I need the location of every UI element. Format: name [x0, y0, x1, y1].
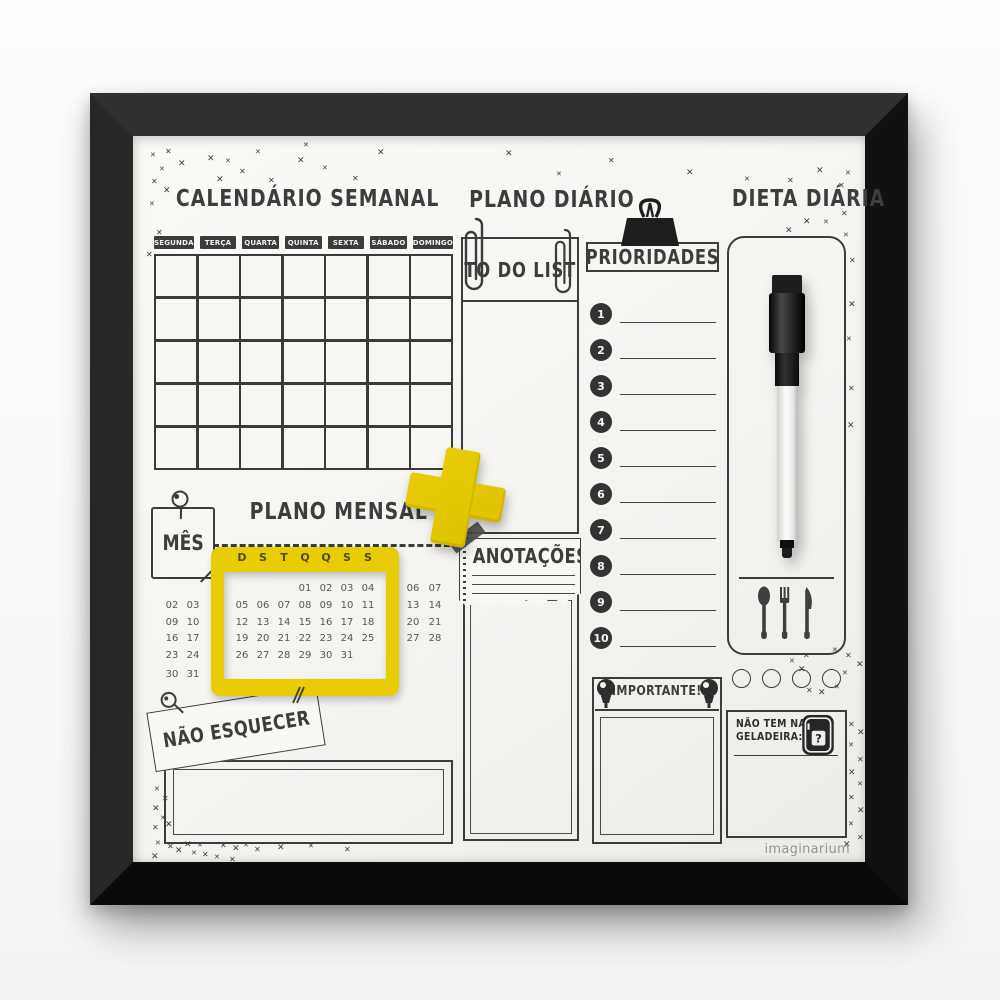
- plus-magnet: [399, 441, 511, 553]
- weekday-letter: Q: [320, 551, 332, 564]
- priority-number-badge: 9: [590, 591, 612, 613]
- week-grid-cell: [326, 385, 366, 425]
- fridge-note-line2: GELADEIRA:: [736, 730, 803, 743]
- calendar-day-number: 16: [162, 633, 182, 644]
- priority-number-badge: 4: [590, 411, 612, 433]
- decorative-cross: ✕: [608, 157, 615, 165]
- priority-number-badge: 10: [590, 627, 612, 649]
- decorative-cross: ✕: [818, 689, 826, 698]
- week-grid-cell: [326, 256, 366, 296]
- week-grid-cell: [241, 256, 281, 296]
- calendar-day-number: 17: [183, 633, 203, 644]
- calendar-day-number: 10: [183, 617, 203, 628]
- decorative-cross: ✕: [152, 824, 159, 832]
- decorative-cross: ✕: [848, 721, 855, 729]
- pen-tip-ring: [780, 540, 794, 548]
- decorative-cross: ✕: [303, 142, 309, 149]
- calendar-day-number: 07: [425, 583, 445, 594]
- decorative-cross: ✕: [167, 843, 174, 851]
- decorative-cross: ✕: [239, 168, 246, 176]
- priority-writing-line: [620, 574, 716, 575]
- priority-number-badge: 5: [590, 447, 612, 469]
- week-grid-cell: [156, 299, 196, 339]
- priority-writing-line: [620, 322, 716, 323]
- calendar-day-number: 28: [425, 633, 445, 644]
- decorative-cross: ✕: [214, 854, 220, 861]
- week-grid-cell: [241, 299, 281, 339]
- week-grid-cell: [284, 299, 324, 339]
- week-grid-cell: [241, 428, 281, 468]
- dont-forget-inner-box: [173, 769, 444, 835]
- pen-body: [777, 386, 797, 542]
- cutlery-icon: [749, 585, 821, 643]
- weekday-label: DOMINGO: [413, 236, 453, 249]
- calendar-day-number: 20: [403, 617, 423, 628]
- priority-number-badge: 2: [590, 339, 612, 361]
- decorative-cross: ✕: [178, 160, 186, 169]
- calendar-day-number: 30: [162, 669, 182, 680]
- calendar-day-number: 09: [162, 617, 182, 628]
- decorative-cross: ✕: [232, 845, 240, 854]
- week-grid-cell: [369, 428, 409, 468]
- priority-writing-line: [620, 502, 716, 503]
- decorative-cross: ✕: [848, 301, 856, 310]
- decorative-cross: ✕: [344, 846, 351, 854]
- decorative-cross: ✕: [165, 148, 172, 156]
- week-grid-cell: [199, 299, 239, 339]
- decorative-cross: ✕: [848, 794, 855, 802]
- decorative-cross: ✕: [277, 844, 285, 853]
- decorative-cross: ✕: [216, 176, 224, 185]
- decorative-cross: ✕: [322, 165, 328, 172]
- week-grid-cell: [369, 342, 409, 382]
- decorative-cross: ✕: [268, 177, 275, 185]
- decorative-cross: ✕: [229, 856, 236, 864]
- week-grid-cell: [156, 385, 196, 425]
- brand-logo-text: imaginarium: [735, 842, 850, 857]
- week-grid-cell: [156, 342, 196, 382]
- decorative-cross: ✕: [297, 157, 305, 166]
- decorative-cross: ✕: [787, 177, 794, 185]
- meal-circles-row: [732, 669, 841, 688]
- decorative-cross: ✕: [849, 257, 856, 265]
- decorative-cross: ✕: [207, 155, 215, 164]
- priority-number-badge: 1: [590, 303, 612, 325]
- weekday-label: SEXTA: [328, 236, 365, 249]
- calendar-day-number: 24: [183, 650, 203, 661]
- weekday-header-row: SEGUNDATERÇAQUARTAQUINTASEXTASÁBADODOMIN…: [154, 236, 453, 249]
- weekday-label: SÁBADO: [370, 236, 407, 249]
- calendar-day-number: 13: [403, 600, 423, 611]
- meal-circle: [822, 669, 841, 688]
- priority-writing-line: [620, 610, 716, 611]
- decorative-cross: ✕: [848, 769, 856, 778]
- fridge-divider: [734, 755, 838, 756]
- decorative-cross: ✕: [175, 847, 183, 856]
- decorative-cross: ✕: [505, 150, 513, 159]
- week-grid-cell: [369, 299, 409, 339]
- week-grid-cell: [241, 385, 281, 425]
- marker-pen: [767, 272, 807, 564]
- month-tag-text: MÊS: [162, 531, 203, 555]
- decorative-cross: ✕: [848, 385, 855, 393]
- daily-diet-title-text: DIETA DIÁRIA: [732, 186, 885, 212]
- week-grid-cell: [284, 342, 324, 382]
- decorative-cross: ✕: [823, 219, 829, 226]
- fridge-icon: ?: [801, 714, 835, 756]
- calendar-day-number: 23: [162, 650, 182, 661]
- weekday-letter: T: [278, 551, 290, 564]
- daily-plan-title-text: PLANO DIÁRIO: [469, 187, 634, 213]
- week-grid-cell: [284, 385, 324, 425]
- decorative-cross: ✕: [857, 781, 863, 788]
- decorative-cross: ✕: [191, 850, 197, 857]
- decorative-cross: ✕: [159, 166, 165, 173]
- important-title-text: IMPORTANTE!: [612, 683, 702, 699]
- priority-writing-line: [620, 430, 716, 431]
- decorative-cross: ✕: [857, 807, 865, 816]
- decorative-cross: ✕: [857, 756, 864, 764]
- important-divider: [595, 709, 719, 711]
- note-ruled-line: [472, 593, 575, 594]
- paperclip-icon: [556, 227, 574, 299]
- weekday-label: QUARTA: [242, 236, 279, 249]
- decorative-cross: ✕: [803, 218, 811, 227]
- decorative-cross: ✕: [155, 840, 161, 847]
- weekly-calendar-title-text: CALENDÁRIO SEMANAL: [176, 186, 439, 212]
- important-inner-box: [600, 717, 714, 835]
- weekday-letter: Q: [299, 551, 311, 564]
- push-pin-icon: [696, 677, 722, 709]
- week-grid-cell: [369, 256, 409, 296]
- pen-collar: [775, 353, 799, 386]
- priority-number-badge: 7: [590, 519, 612, 541]
- calendar-day-number: 21: [425, 617, 445, 628]
- note-ruled-line: [472, 584, 575, 585]
- decorative-cross: ✕: [785, 227, 793, 236]
- daily-plan-title: PLANO DIÁRIO: [451, 187, 591, 213]
- diet-divider: [739, 577, 834, 579]
- notes-inner-box: [470, 600, 572, 834]
- priority-writing-line: [620, 394, 716, 395]
- week-grid-cell: [411, 342, 451, 382]
- priority-writing-line: [620, 646, 716, 647]
- decorative-cross: ✕: [848, 821, 854, 828]
- priority-number-badge: 3: [590, 375, 612, 397]
- week-grid-cell: [369, 385, 409, 425]
- meal-circle: [792, 669, 811, 688]
- decorative-cross: ✕: [857, 729, 865, 738]
- decorative-cross: ✕: [744, 176, 750, 183]
- week-grid-cell: [284, 428, 324, 468]
- decorative-cross: ✕: [856, 661, 864, 670]
- priorities-list: 12345678910: [588, 300, 720, 662]
- priority-writing-line: [620, 538, 716, 539]
- week-grid-cell: [199, 342, 239, 382]
- decorative-cross: ✕: [857, 834, 864, 842]
- meal-circle: [732, 669, 751, 688]
- week-grid-cell: [411, 385, 451, 425]
- week-grid-cell: [156, 428, 196, 468]
- weekday-label: SEGUNDA: [154, 236, 194, 249]
- weekday-letter: S: [257, 551, 269, 564]
- week-grid-cell: [199, 256, 239, 296]
- product-photo-stage: ✕✕✕✕✕✕✕✕✕✕✕✕✕✕✕✕✕✕✕✕✕✕✕✕✕✕✕✕✕✕✕✕✕✕✕✕✕✕✕✕…: [0, 0, 1000, 1000]
- decorative-cross: ✕: [845, 652, 852, 660]
- decorative-cross: ✕: [789, 658, 795, 665]
- priority-writing-line: [620, 466, 716, 467]
- calendar-day-number: 02: [162, 600, 182, 611]
- question-mark: ?: [815, 731, 822, 745]
- priority-writing-line: [620, 358, 716, 359]
- note-ruled-line: [472, 575, 575, 576]
- notebook-perforation: [463, 545, 466, 603]
- decorative-cross: ✕: [308, 843, 314, 850]
- week-grid-cell: [326, 299, 366, 339]
- binder-clip-icon: [613, 196, 687, 248]
- week-grid-cell: [241, 342, 281, 382]
- weekday-label: QUINTA: [285, 236, 322, 249]
- decorative-cross: ✕: [848, 742, 854, 749]
- week-grid-cell: [199, 385, 239, 425]
- week-grid-cell: [156, 256, 196, 296]
- priority-number-badge: 6: [590, 483, 612, 505]
- decorative-cross: ✕: [150, 152, 156, 159]
- paperclip-mark-icon: [290, 685, 306, 705]
- paperclip-icon: [465, 215, 487, 297]
- decorative-cross: ✕: [151, 853, 159, 862]
- decorative-cross: ✕: [377, 149, 385, 158]
- week-grid-cell: [411, 299, 451, 339]
- weekday-letter: D: [236, 551, 248, 564]
- decorative-cross: ✕: [151, 178, 158, 186]
- decorative-cross: ✕: [846, 336, 852, 343]
- decorative-cross: ✕: [816, 167, 824, 176]
- calendar-day-number: 31: [183, 669, 203, 680]
- daily-diet-title: DIETA DIÁRIA: [715, 186, 855, 212]
- pen-tip: [782, 548, 792, 558]
- week-grid-cell: [326, 342, 366, 382]
- weekly-grid: [154, 254, 453, 470]
- priorities-title-text: PRIORIDADES: [586, 245, 720, 269]
- decorative-cross: ✕: [556, 171, 562, 178]
- priority-number-badge: 8: [590, 555, 612, 577]
- week-grid-cell: [326, 428, 366, 468]
- weekday-letter: S: [362, 551, 374, 564]
- push-pin-icon: [593, 677, 619, 709]
- fridge-note-line1: NÃO TEM NA: [736, 717, 806, 730]
- calendar-day-number: 27: [403, 633, 423, 644]
- calendar-day-number: 03: [183, 600, 203, 611]
- decorative-cross: ✕: [254, 846, 261, 854]
- pen-cap: [769, 293, 805, 353]
- week-grid-cell: [411, 256, 451, 296]
- week-grid-cell: [199, 428, 239, 468]
- decorative-cross: ✕: [152, 805, 160, 814]
- decorative-cross: ✕: [255, 149, 261, 156]
- decorative-cross: ✕: [847, 422, 855, 431]
- decorative-cross: ✕: [806, 687, 813, 695]
- calendar-day-number: 14: [425, 600, 445, 611]
- decorative-cross: ✕: [843, 232, 849, 239]
- monthly-plan-title: PLANO MENSAL: [230, 499, 430, 525]
- calendar-day-number: 06: [403, 583, 423, 594]
- decorative-cross: ✕: [352, 175, 359, 183]
- weekday-letters-row: DSTQQSS: [211, 551, 399, 569]
- yellow-frame-magnet: [211, 547, 399, 696]
- decorative-cross: ✕: [202, 851, 209, 859]
- decorative-cross: ✕: [225, 158, 231, 165]
- decorative-cross: ✕: [845, 170, 851, 177]
- weekday-label: TERÇA: [200, 236, 237, 249]
- decorative-cross: ✕: [686, 169, 694, 178]
- round-pin-icon: [164, 487, 198, 525]
- weekly-calendar-title: CALENDÁRIO SEMANAL: [147, 186, 447, 212]
- weekday-letter: S: [341, 551, 353, 564]
- decorative-cross: ✕: [842, 670, 848, 677]
- week-grid-cell: [284, 256, 324, 296]
- decorative-cross: ✕: [146, 251, 153, 259]
- meal-circle: [762, 669, 781, 688]
- decorative-cross: ✕: [154, 786, 160, 793]
